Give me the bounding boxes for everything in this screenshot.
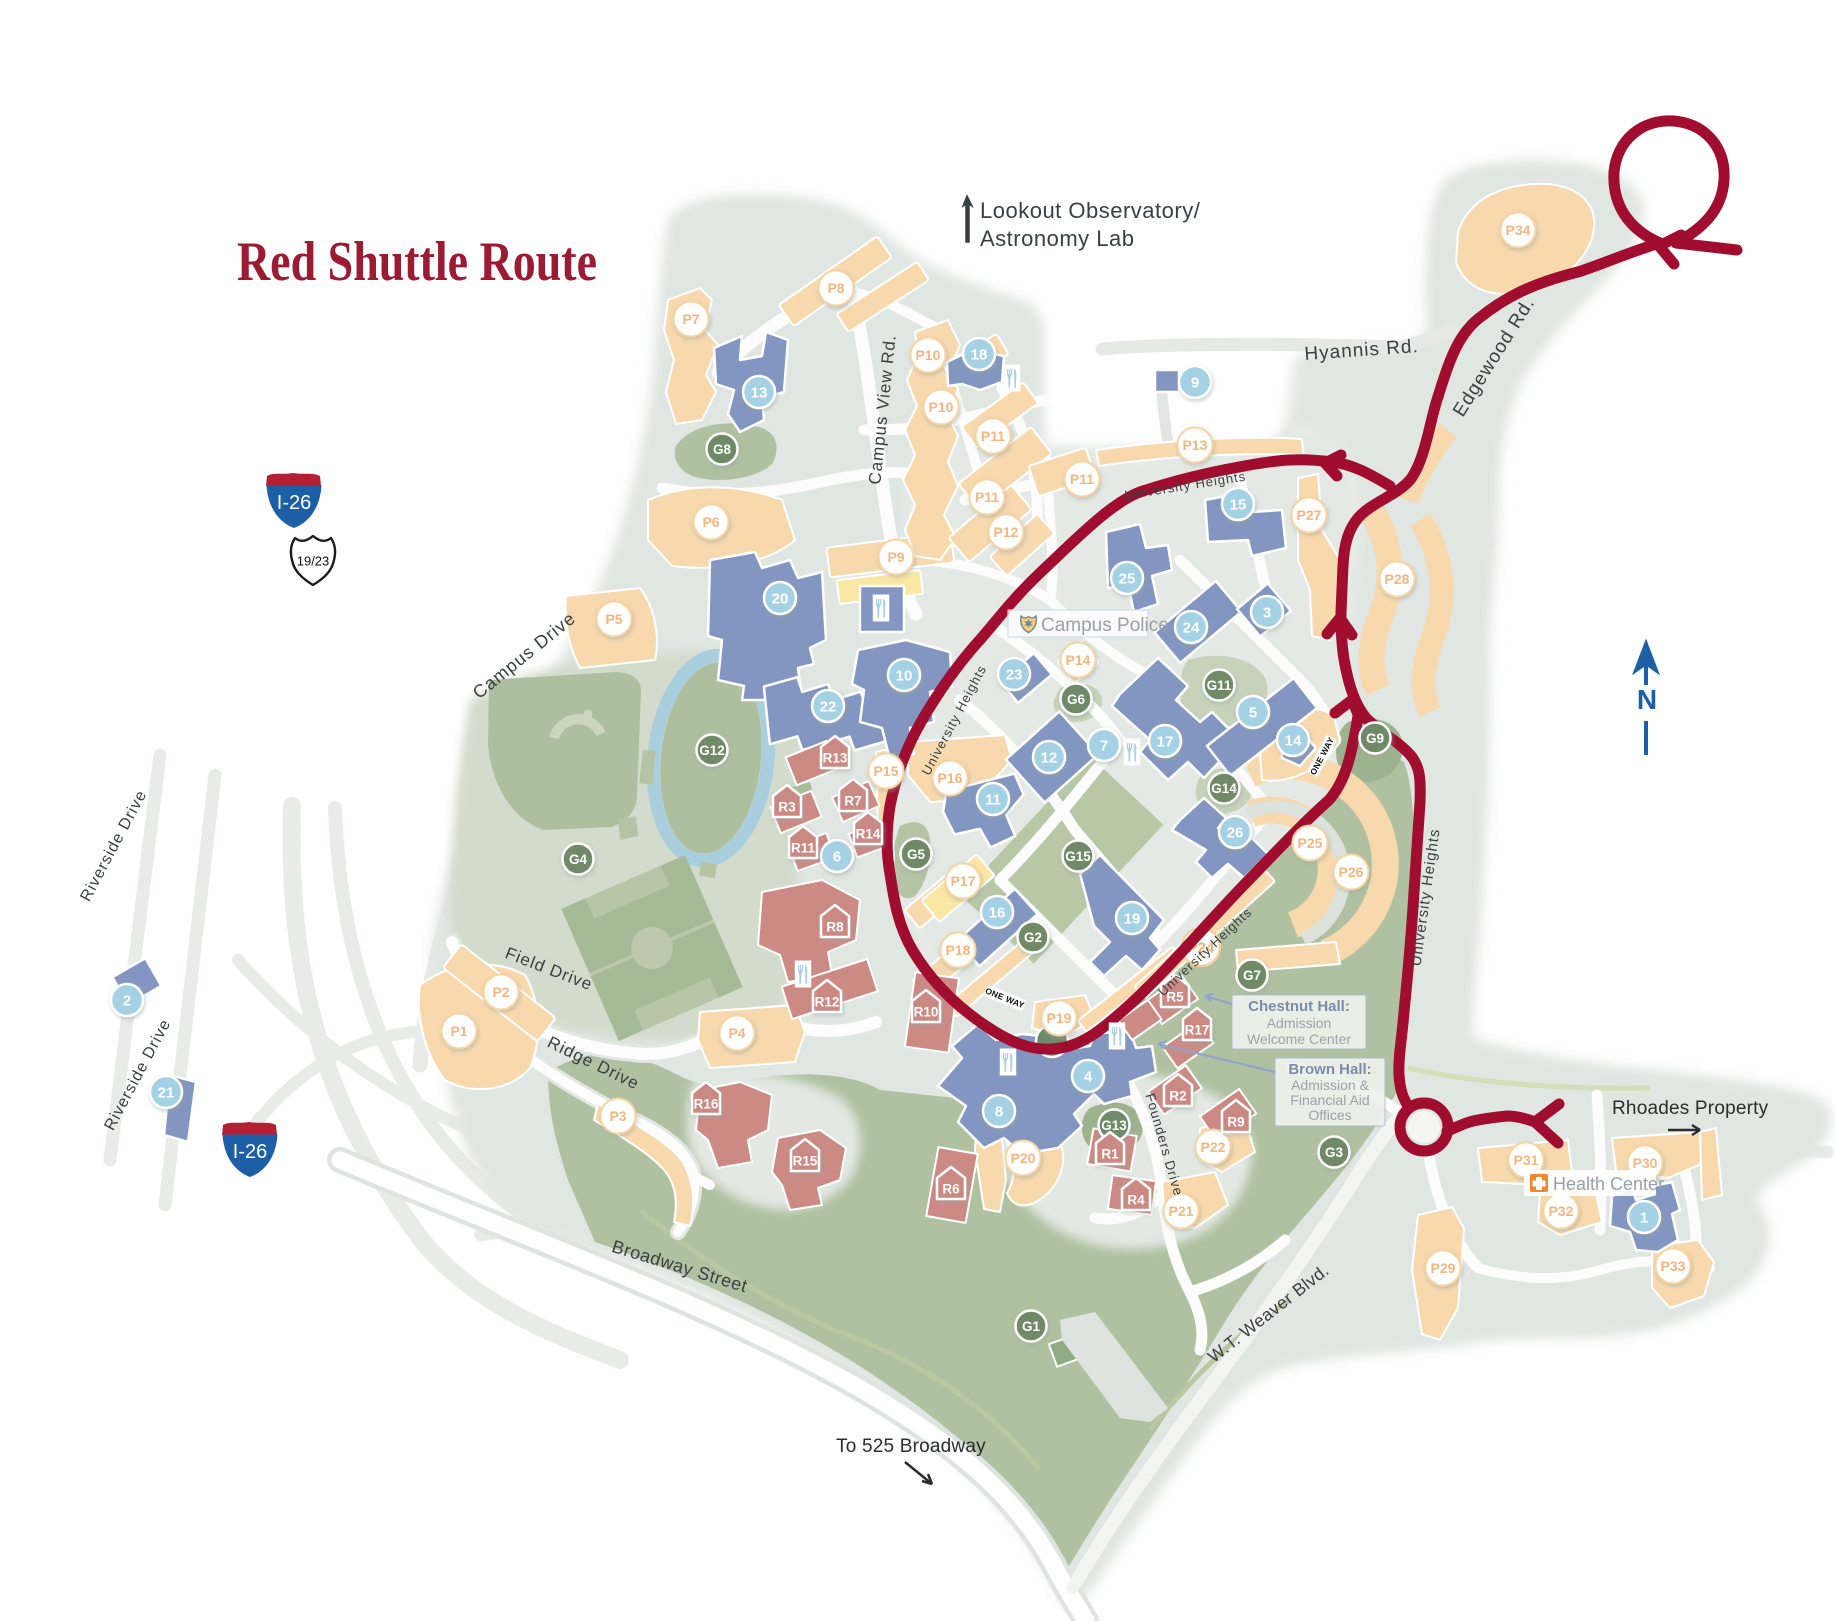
svg-text:P18: P18: [946, 942, 971, 958]
svg-text:P14: P14: [1066, 652, 1091, 668]
svg-text:P28: P28: [1385, 571, 1410, 587]
svg-text:P10: P10: [929, 399, 954, 415]
svg-text:R2: R2: [1169, 1089, 1186, 1104]
svg-text:9: 9: [1191, 375, 1199, 392]
svg-text:3: 3: [1263, 605, 1271, 622]
svg-text:G2: G2: [1024, 930, 1042, 945]
svg-text:P25: P25: [1298, 835, 1323, 851]
svg-text:P27: P27: [1297, 507, 1322, 523]
svg-text:R16: R16: [694, 1097, 719, 1112]
svg-text:G15: G15: [1065, 849, 1091, 864]
svg-text:P8: P8: [827, 280, 844, 296]
svg-text:G6: G6: [1067, 692, 1086, 707]
svg-text:15: 15: [1230, 497, 1247, 514]
svg-text:P20: P20: [1011, 1150, 1036, 1166]
svg-text:G9: G9: [1366, 731, 1384, 746]
svg-text:R10: R10: [914, 1005, 939, 1020]
svg-text:17: 17: [1157, 734, 1174, 751]
svg-text:R15: R15: [793, 1154, 818, 1169]
svg-text:G13: G13: [1101, 1118, 1127, 1133]
svg-text:20: 20: [772, 591, 789, 608]
svg-text:R11: R11: [791, 841, 816, 856]
svg-text:4: 4: [1084, 1069, 1093, 1086]
svg-text:P11: P11: [981, 428, 1005, 444]
svg-text:Lookout Observatory/: Lookout Observatory/: [980, 198, 1201, 223]
svg-text:P16: P16: [938, 770, 963, 786]
svg-text:7: 7: [1100, 738, 1108, 755]
svg-text:Chestnut Hall:: Chestnut Hall:: [1248, 998, 1350, 1015]
svg-text:12: 12: [1041, 750, 1058, 767]
svg-text:23: 23: [1006, 667, 1023, 684]
svg-text:21: 21: [158, 1085, 175, 1102]
svg-text:19: 19: [1124, 911, 1141, 928]
svg-text:P11: P11: [1070, 471, 1094, 487]
svg-text:16: 16: [989, 905, 1006, 922]
svg-text:R3: R3: [778, 800, 796, 815]
svg-text:G4: G4: [569, 852, 588, 867]
svg-text:19/23: 19/23: [297, 554, 330, 569]
svg-text:P19: P19: [1047, 1010, 1072, 1026]
svg-text:R14: R14: [856, 827, 881, 842]
svg-text:P32: P32: [1549, 1203, 1574, 1219]
svg-text:P34: P34: [1506, 222, 1531, 238]
svg-text:Admission: Admission: [1267, 1015, 1332, 1031]
svg-text:Red Shuttle Route: Red Shuttle Route: [237, 231, 597, 293]
svg-text:P12: P12: [994, 524, 1019, 540]
svg-text:14: 14: [1285, 733, 1302, 750]
svg-text:Offices: Offices: [1308, 1107, 1351, 1123]
svg-text:13: 13: [751, 385, 768, 402]
svg-text:24: 24: [1183, 620, 1200, 637]
svg-text:26: 26: [1227, 825, 1244, 842]
svg-text:11: 11: [985, 792, 1001, 809]
svg-text:P4: P4: [728, 1025, 745, 1041]
svg-text:10: 10: [896, 668, 913, 685]
svg-text:R9: R9: [1227, 1115, 1244, 1130]
svg-text:2: 2: [123, 993, 131, 1010]
svg-text:P3: P3: [609, 1108, 626, 1124]
svg-text:Campus Police: Campus Police: [1041, 615, 1169, 636]
svg-text:G14: G14: [1211, 781, 1237, 796]
svg-text:G5: G5: [907, 847, 926, 862]
svg-text:Health Center: Health Center: [1553, 1174, 1664, 1194]
svg-text:P17: P17: [951, 873, 976, 889]
svg-text:6: 6: [833, 849, 841, 866]
svg-text:P9: P9: [887, 549, 904, 565]
svg-text:G11: G11: [1207, 678, 1232, 693]
svg-text:P30: P30: [1633, 1155, 1658, 1171]
svg-text:22: 22: [820, 699, 837, 716]
svg-text:R12: R12: [815, 995, 840, 1010]
svg-text:P15: P15: [874, 763, 899, 779]
svg-text:18: 18: [971, 347, 988, 364]
svg-text:Welcome Center: Welcome Center: [1247, 1031, 1351, 1047]
svg-text:P7: P7: [682, 311, 699, 327]
svg-text:I-26: I-26: [233, 1141, 267, 1163]
svg-text:R17: R17: [1185, 1023, 1210, 1038]
svg-text:G3: G3: [1325, 1145, 1344, 1160]
svg-text:G1: G1: [1022, 1319, 1041, 1334]
svg-text:1: 1: [1640, 1210, 1648, 1227]
svg-text:G12: G12: [699, 743, 725, 758]
svg-text:G7: G7: [1243, 968, 1261, 983]
svg-text:R13: R13: [823, 751, 848, 766]
svg-text:P22: P22: [1201, 1139, 1226, 1155]
svg-text:N: N: [1637, 684, 1657, 715]
svg-text:R1: R1: [1101, 1147, 1119, 1162]
svg-text:25: 25: [1119, 571, 1136, 588]
svg-text:Astronomy Lab: Astronomy Lab: [980, 226, 1134, 251]
svg-text:P5: P5: [605, 611, 622, 627]
svg-text:P21: P21: [1169, 1203, 1194, 1219]
svg-text:R7: R7: [844, 794, 861, 809]
svg-text:P33: P33: [1661, 1258, 1686, 1274]
svg-text:P6: P6: [702, 514, 719, 530]
svg-text:R8: R8: [826, 920, 844, 935]
svg-text:P1: P1: [450, 1023, 467, 1039]
svg-text:8: 8: [995, 1104, 1003, 1121]
svg-text:G8: G8: [713, 442, 732, 457]
svg-text:P13: P13: [1183, 437, 1208, 453]
svg-text:R6: R6: [942, 1182, 960, 1197]
svg-text:To 525 Broadway: To 525 Broadway: [836, 1436, 986, 1457]
svg-text:P11: P11: [975, 489, 999, 505]
svg-text:P10: P10: [916, 347, 941, 363]
svg-text:P29: P29: [1431, 1260, 1456, 1276]
svg-text:P26: P26: [1339, 864, 1364, 880]
svg-text:5: 5: [1249, 705, 1257, 722]
svg-text:Financial Aid: Financial Aid: [1290, 1092, 1369, 1108]
svg-text:I-26: I-26: [277, 492, 311, 514]
svg-text:Admission &: Admission &: [1291, 1077, 1369, 1093]
svg-text:Rhoades Property: Rhoades Property: [1612, 1098, 1769, 1119]
svg-text:P31: P31: [1514, 1152, 1539, 1168]
svg-text:Brown Hall:: Brown Hall:: [1288, 1061, 1371, 1078]
svg-text:P2: P2: [492, 984, 509, 1000]
svg-text:R4: R4: [1127, 1193, 1145, 1208]
